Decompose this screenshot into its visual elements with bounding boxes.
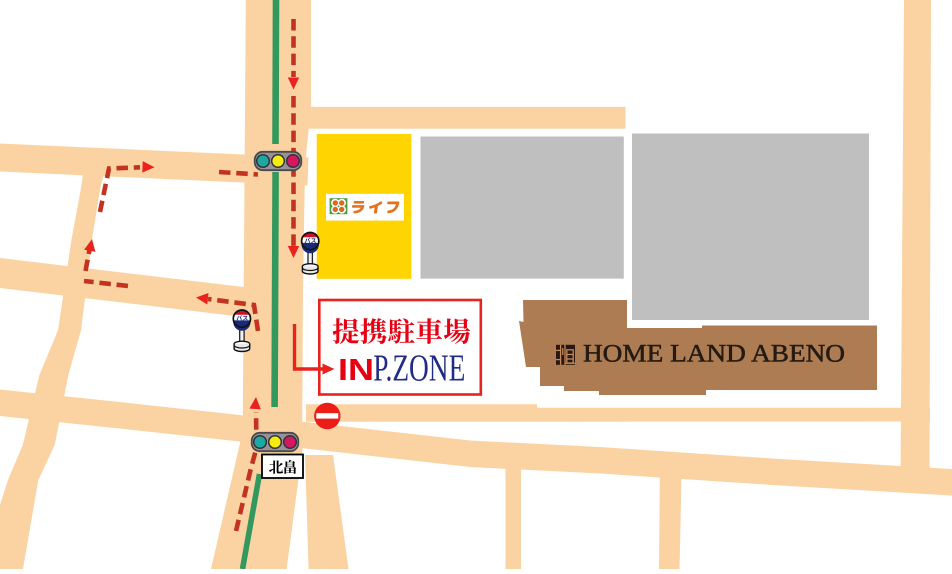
- svg-text:HOME LAND ABENO: HOME LAND ABENO: [583, 341, 845, 368]
- svg-text:P.ZONE: P.ZONE: [373, 348, 465, 390]
- svg-text:IN: IN: [338, 352, 374, 387]
